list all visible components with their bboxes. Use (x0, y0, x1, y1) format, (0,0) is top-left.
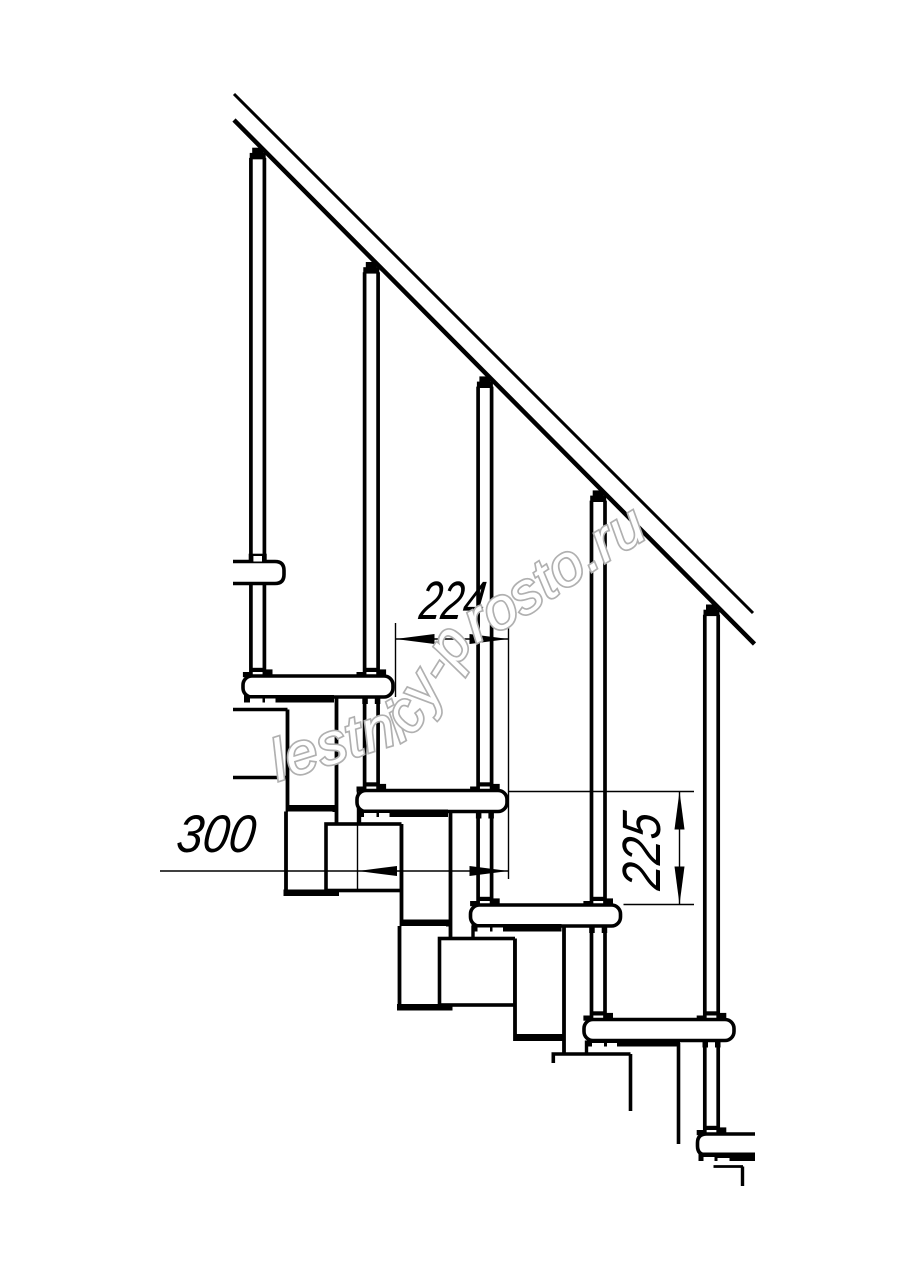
svg-text:300: 300 (173, 805, 260, 864)
svg-text:225: 225 (612, 808, 672, 894)
